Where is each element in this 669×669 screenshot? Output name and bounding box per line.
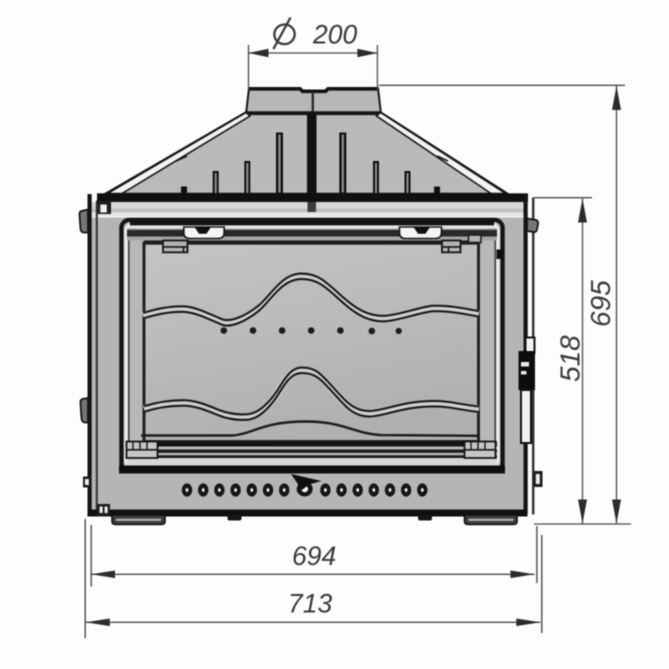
- svg-text:695: 695: [585, 280, 616, 327]
- svg-text:200: 200: [312, 20, 357, 50]
- svg-text:713: 713: [288, 589, 332, 619]
- svg-text:694: 694: [292, 541, 336, 571]
- svg-text:518: 518: [555, 335, 586, 382]
